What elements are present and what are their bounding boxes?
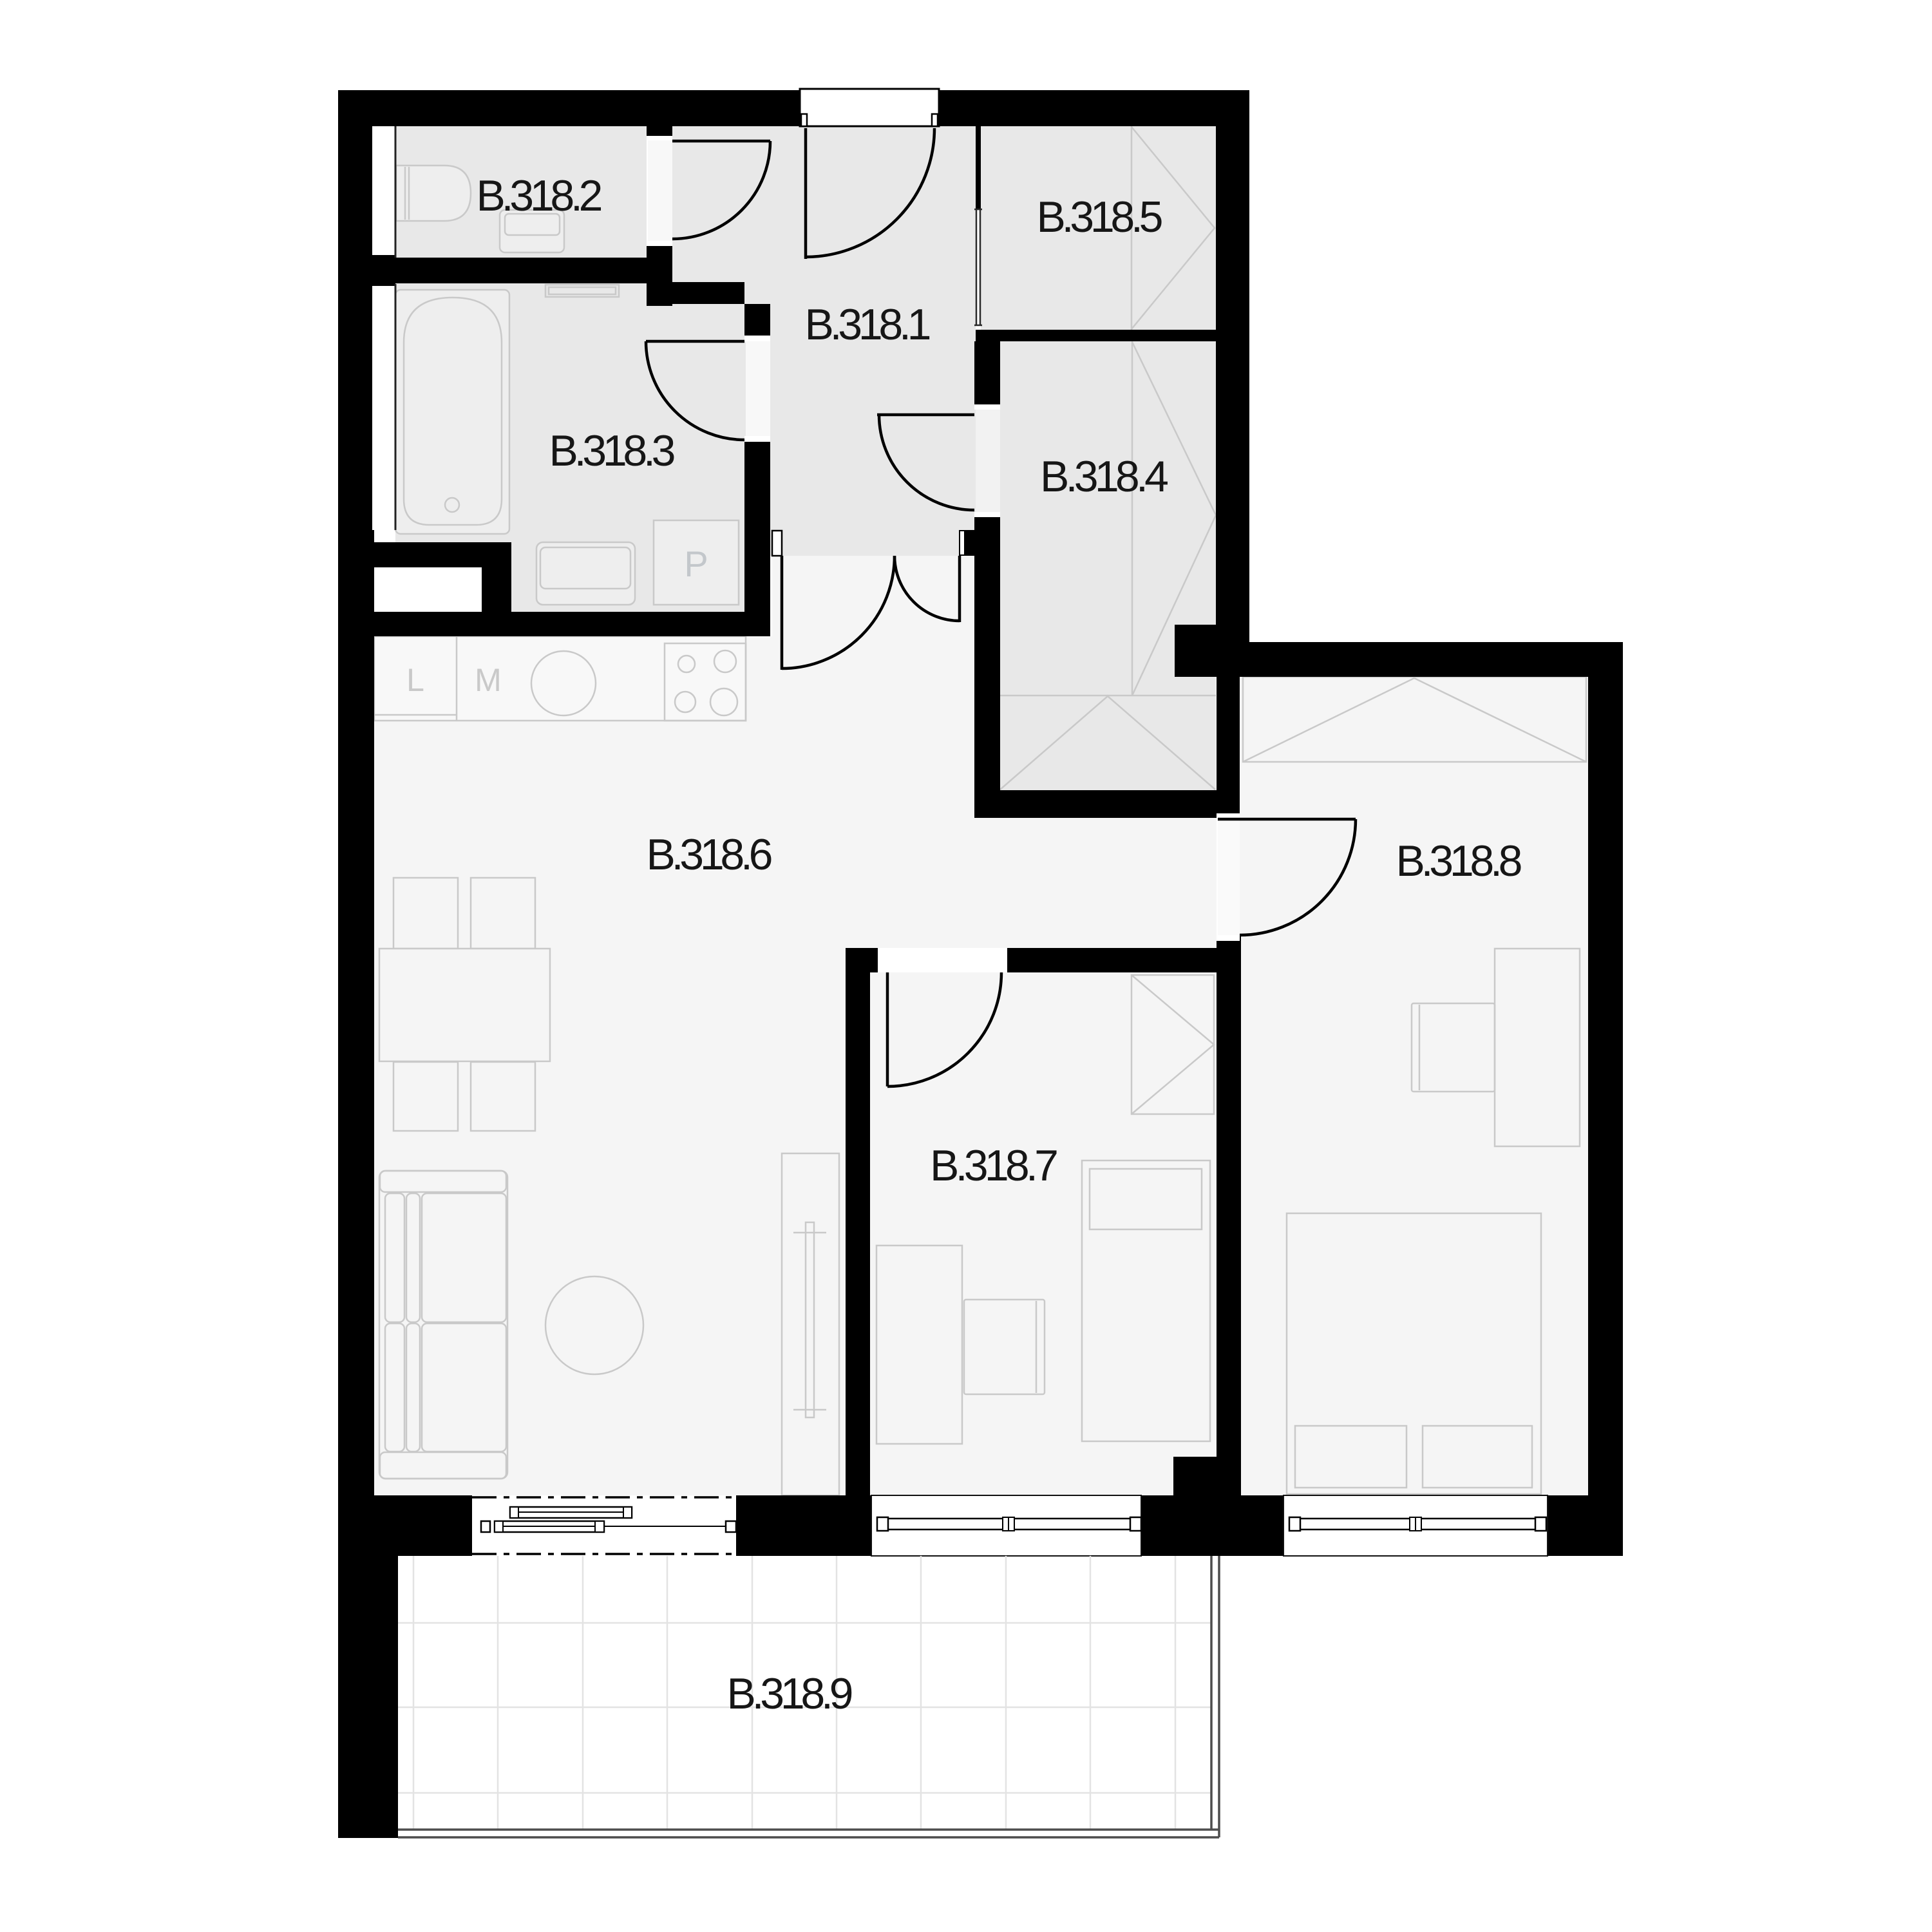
svg-text:B.318.7: B.318.7 xyxy=(930,1141,1059,1190)
svg-text:M: M xyxy=(475,662,502,698)
svg-text:B.318.9: B.318.9 xyxy=(727,1669,854,1718)
svg-text:B.318.1: B.318.1 xyxy=(805,300,932,349)
svg-text:B.318.8: B.318.8 xyxy=(1396,837,1523,885)
svg-text:B.318.4: B.318.4 xyxy=(1040,452,1169,501)
svg-text:B.318.2: B.318.2 xyxy=(477,171,603,220)
svg-text:L: L xyxy=(406,662,424,698)
svg-text:B.318.3: B.318.3 xyxy=(549,426,676,475)
svg-text:B.318.5: B.318.5 xyxy=(1037,193,1164,241)
svg-text:P: P xyxy=(684,544,708,584)
svg-text:B.318.6: B.318.6 xyxy=(647,830,773,879)
